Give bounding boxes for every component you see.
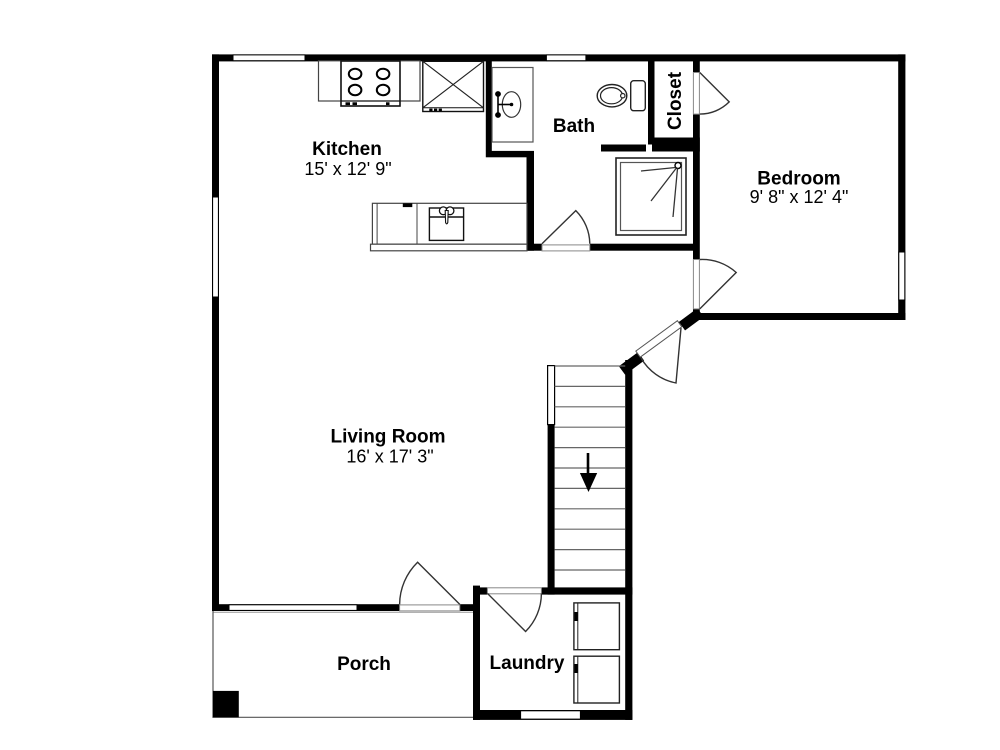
svg-text:15' x 12' 9": 15' x 12' 9" <box>304 159 391 179</box>
svg-text:Living Room: Living Room <box>330 427 445 448</box>
svg-text:Closet: Closet <box>665 71 686 130</box>
svg-text:Laundry: Laundry <box>490 653 565 674</box>
svg-text:16' x 17' 3": 16' x 17' 3" <box>346 446 433 466</box>
svg-text:Kitchen: Kitchen <box>312 139 382 160</box>
svg-text:9' 8" x 12' 4": 9' 8" x 12' 4" <box>750 187 849 207</box>
svg-text:Porch: Porch <box>337 654 391 675</box>
svg-text:Bath: Bath <box>553 116 595 137</box>
